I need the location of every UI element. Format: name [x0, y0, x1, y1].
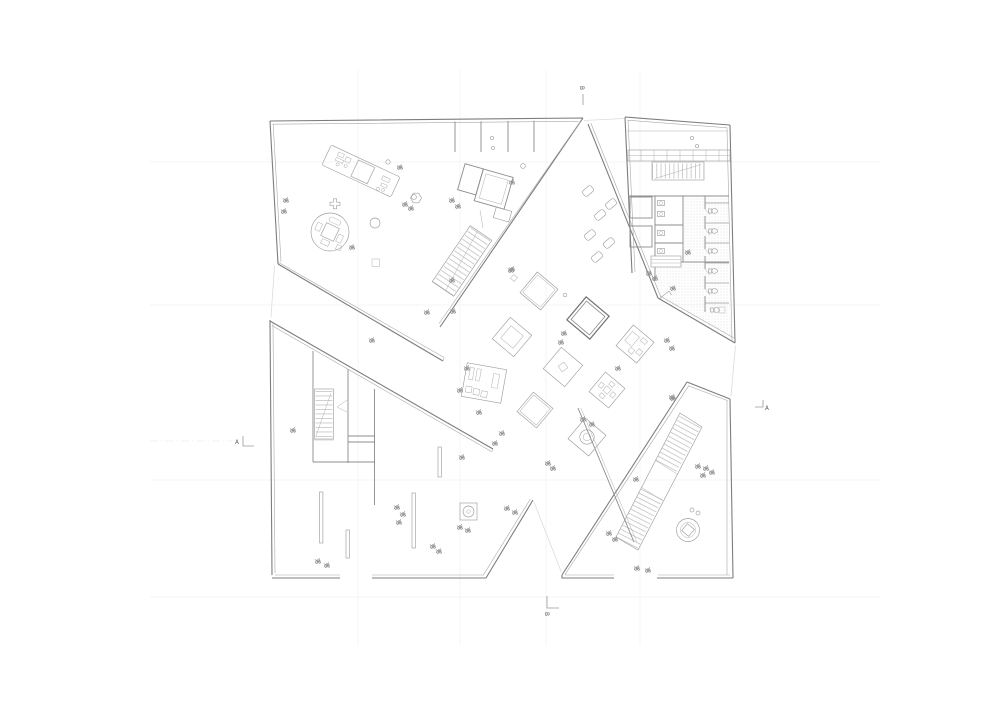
plant-icon	[669, 345, 675, 351]
plant-icon	[580, 416, 586, 422]
skylight-plinth	[492, 317, 531, 356]
plinth-with-chairs	[589, 372, 625, 408]
bench-icon	[594, 209, 607, 221]
plant-icon	[430, 543, 436, 549]
floor-plan-drawing: B B A A	[0, 0, 1000, 707]
plant-icon	[550, 465, 556, 471]
plant-icon	[703, 465, 709, 471]
plant-icon	[492, 440, 498, 446]
plant-icon	[695, 463, 701, 469]
bench-icon	[603, 237, 616, 249]
bench-counter	[651, 256, 681, 267]
plant-icon	[633, 476, 639, 482]
faint-grid-lines	[150, 70, 880, 645]
plant-icon	[408, 205, 414, 211]
skylight-plinth-dark	[567, 297, 609, 339]
plant-icon	[349, 244, 355, 250]
plant-icon	[400, 511, 406, 517]
skylight-plinth	[517, 392, 553, 428]
plant-icon	[499, 430, 505, 436]
wash-room	[655, 225, 683, 243]
plant-icon	[700, 472, 706, 478]
wing-northeast	[625, 117, 735, 343]
round-table	[310, 213, 351, 252]
plant-icon	[512, 509, 518, 515]
round-table-southeast	[677, 519, 700, 542]
wing-southwest	[270, 320, 533, 578]
bench-icon	[584, 229, 597, 241]
plant-icon	[645, 567, 651, 573]
door-swing	[337, 400, 347, 412]
plant-icon	[504, 505, 510, 511]
entry-benches	[582, 185, 618, 263]
section-label-b-top: B	[578, 86, 586, 90]
reception-desk	[322, 145, 400, 197]
plant-icon	[561, 330, 567, 336]
atrium-bench-wall	[578, 408, 637, 542]
bench-icon	[605, 198, 618, 210]
plant-icon	[449, 197, 455, 203]
stair-core-southwest	[313, 351, 375, 505]
plant-icon	[436, 548, 442, 554]
section-marker-a-left: A	[150, 436, 254, 446]
plant-icon	[402, 201, 408, 207]
plant-icon	[509, 179, 515, 185]
floor-plan-sheet: B B A A	[0, 0, 1000, 707]
bench-icon	[591, 251, 604, 263]
plant-icon	[281, 208, 287, 214]
plant-icon	[290, 427, 296, 433]
plant-icon	[615, 365, 621, 371]
plant-icon	[476, 409, 482, 415]
elevator-core	[453, 164, 521, 222]
plant-icon	[612, 536, 618, 542]
section-marker-b-bottom: B	[543, 596, 559, 616]
plant-icon	[709, 469, 715, 475]
column-plinth	[460, 503, 477, 520]
wing-northwest	[270, 118, 583, 361]
plant-icon	[664, 337, 670, 343]
section-marks: B B A A	[150, 86, 769, 616]
plant-icon	[396, 519, 402, 525]
plant-icon	[509, 266, 515, 272]
bench-icon	[582, 185, 595, 197]
plinth-with-seating	[616, 325, 654, 363]
column-cross-marker	[330, 199, 340, 209]
plant-icon	[465, 527, 471, 533]
stair-northeast	[652, 162, 704, 180]
section-label-a-right: A	[765, 404, 769, 412]
skylight-plinth	[543, 347, 582, 386]
wardrobe-band	[628, 150, 730, 161]
gallery-partitions	[320, 447, 442, 558]
section-label-a-left: A	[235, 438, 239, 446]
plant-icon	[397, 164, 403, 170]
plant-icon	[369, 337, 375, 343]
section-marker-b-top: B	[578, 86, 586, 105]
plant-icon	[606, 530, 612, 536]
plant-icon	[558, 339, 564, 345]
skylight-plinth	[520, 272, 558, 310]
small-floor-tile	[510, 274, 517, 281]
plant-icon	[324, 562, 330, 568]
plant-icon	[394, 504, 400, 510]
round-stool	[370, 218, 380, 228]
plant-icon	[283, 197, 289, 203]
plant-icon	[634, 565, 640, 571]
central-atrium	[461, 272, 654, 542]
plinth-with-planter	[568, 418, 606, 456]
plant-icon	[315, 558, 321, 564]
glass-lines	[271, 119, 736, 573]
section-marker-a-right: A	[755, 400, 769, 412]
floor-box	[372, 259, 380, 267]
section-label-b-bottom: B	[543, 612, 551, 616]
shaft-room	[630, 197, 652, 218]
plant-icon	[424, 309, 430, 315]
